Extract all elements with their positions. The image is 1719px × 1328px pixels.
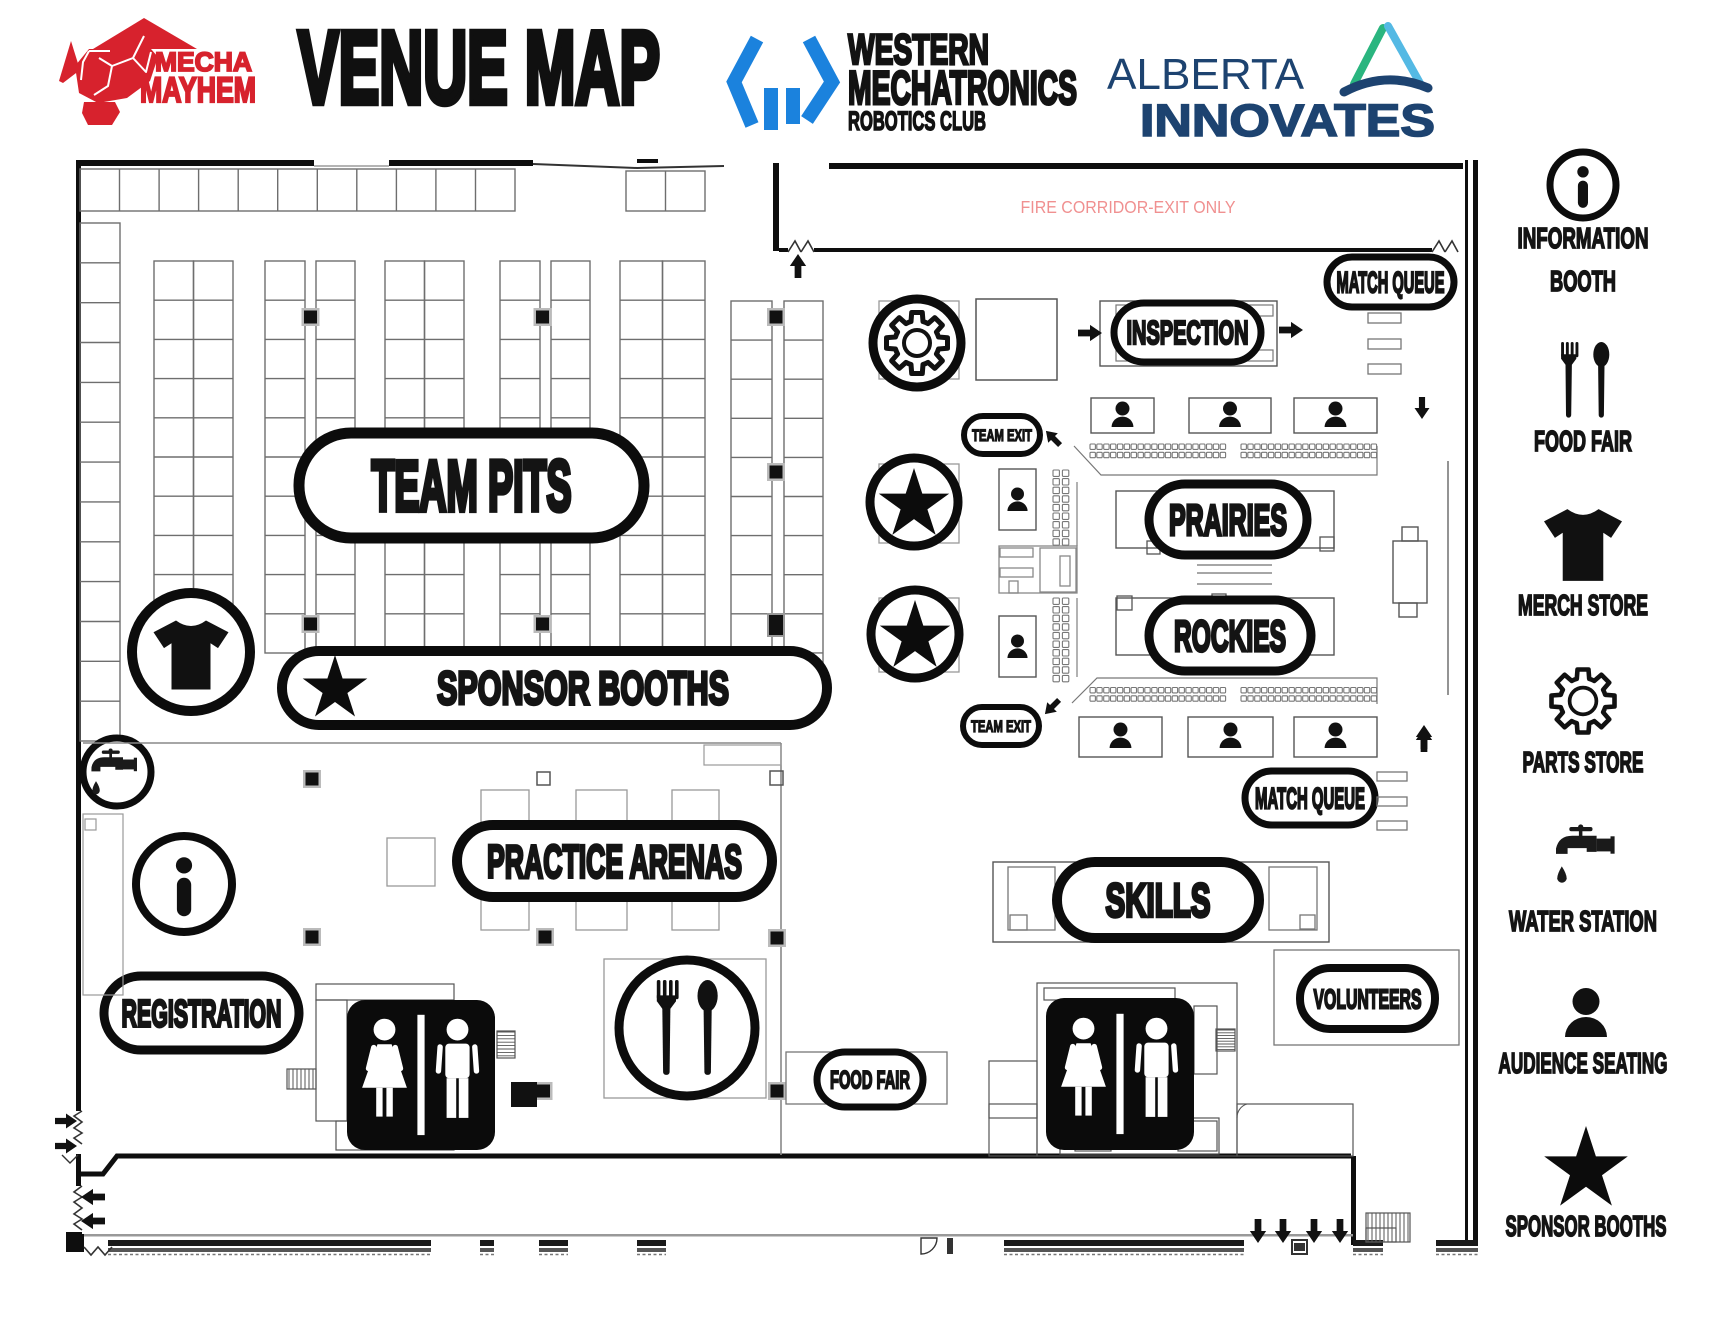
svg-text:PRACTICE ARENAS: PRACTICE ARENAS [487, 835, 742, 887]
svg-text:ROBOTICS CLUB: ROBOTICS CLUB [848, 106, 986, 136]
svg-text:VENUE MAP: VENUE MAP [298, 10, 660, 125]
svg-text:TEAM EXIT: TEAM EXIT [972, 426, 1032, 445]
svg-text:ALBERTA: ALBERTA [1107, 50, 1305, 99]
svg-text:MERCH STORE: MERCH STORE [1518, 590, 1648, 622]
svg-text:SPONSOR BOOTHS: SPONSOR BOOTHS [437, 662, 729, 714]
svg-text:PRAIRIES: PRAIRIES [1169, 496, 1287, 545]
svg-text:WATER STATION: WATER STATION [1509, 906, 1657, 938]
svg-text:AUDIENCE SEATING: AUDIENCE SEATING [1499, 1048, 1668, 1080]
svg-text:BOOTH: BOOTH [1550, 266, 1616, 298]
svg-text:ROCKIES: ROCKIES [1174, 612, 1286, 661]
svg-text:SPONSOR BOOTHS: SPONSOR BOOTHS [1506, 1211, 1667, 1243]
svg-text:TEAM PITS: TEAM PITS [372, 448, 572, 527]
svg-text:MAYHEM: MAYHEM [140, 71, 256, 110]
svg-text:FOOD FAIR: FOOD FAIR [1534, 426, 1632, 458]
svg-text:REGISTRATION: REGISTRATION [122, 994, 282, 1036]
svg-text:MATCH QUEUE: MATCH QUEUE [1337, 267, 1445, 300]
svg-text:INNOVATES: INNOVATES [1140, 95, 1435, 146]
svg-text:MATCH QUEUE: MATCH QUEUE [1255, 783, 1365, 816]
svg-text:VOLUNTEERS: VOLUNTEERS [1314, 983, 1422, 1014]
svg-text:INSPECTION: INSPECTION [1127, 314, 1249, 351]
svg-text:FOOD FAIR: FOOD FAIR [830, 1066, 910, 1094]
svg-text:PARTS STORE: PARTS STORE [1523, 747, 1644, 779]
svg-text:SKILLS: SKILLS [1106, 874, 1211, 927]
svg-text:FIRE CORRIDOR-EXIT ONLY: FIRE CORRIDOR-EXIT ONLY [1021, 197, 1236, 217]
svg-text:TEAM EXIT: TEAM EXIT [971, 717, 1031, 736]
svg-text:INFORMATION: INFORMATION [1518, 223, 1649, 255]
